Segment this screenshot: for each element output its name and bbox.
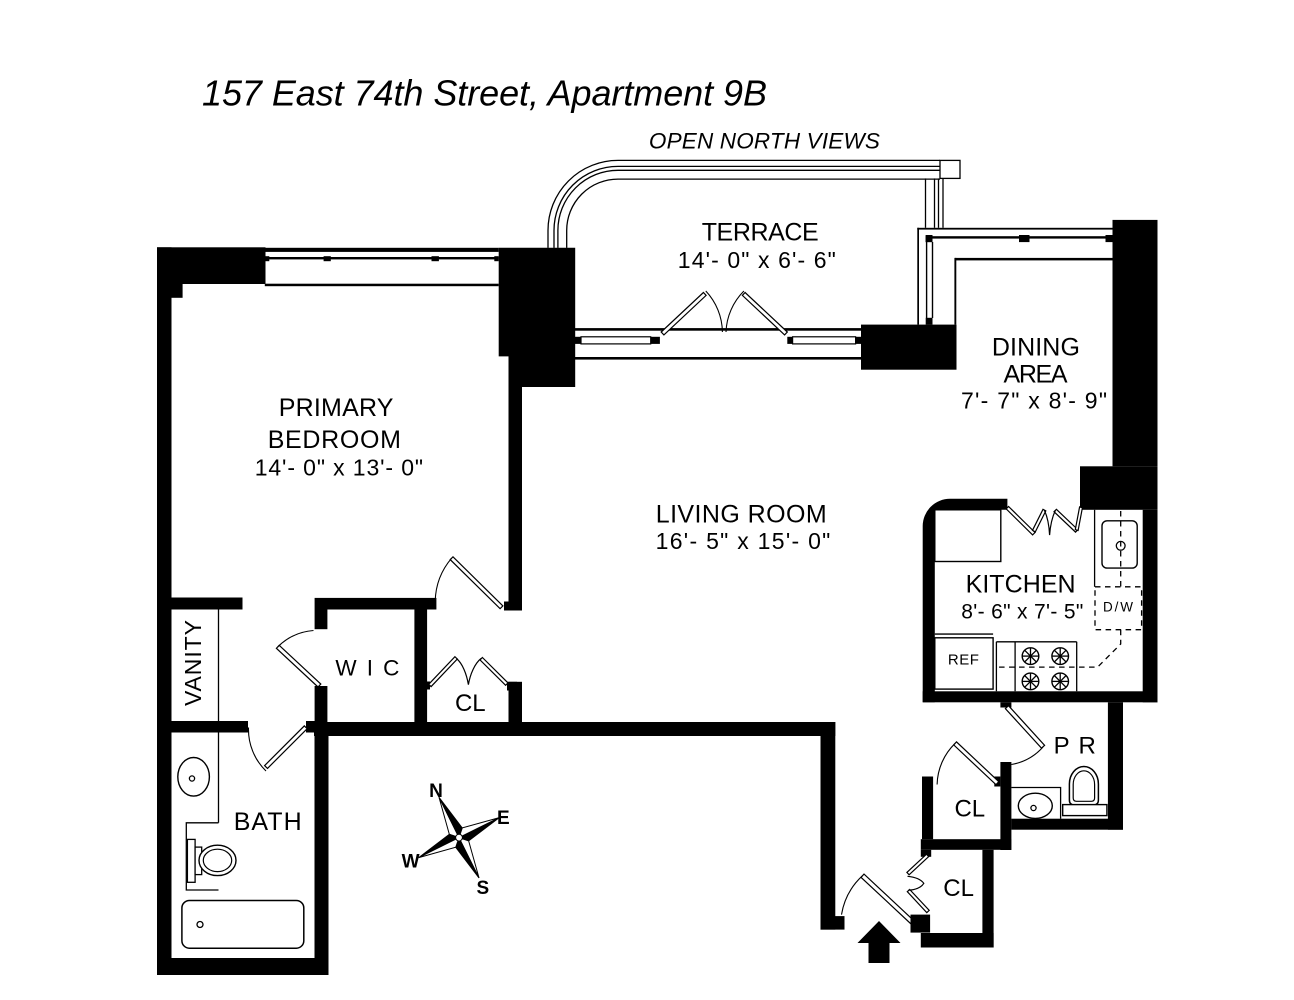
svg-text:7'- 7" x 8'- 9": 7'- 7" x 8'- 9" xyxy=(961,388,1107,414)
svg-text:REF: REF xyxy=(948,652,979,669)
svg-text:E: E xyxy=(497,808,510,829)
svg-text:W I C: W I C xyxy=(335,656,399,681)
svg-text:PRIMARY: PRIMARY xyxy=(279,394,394,422)
svg-text:14'- 0" x 6'- 6": 14'- 0" x 6'- 6" xyxy=(678,247,836,273)
svg-text:CL: CL xyxy=(943,875,974,902)
svg-text:CL: CL xyxy=(954,795,985,822)
svg-text:KITCHEN: KITCHEN xyxy=(966,570,1076,598)
svg-text:OPEN NORTH VIEWS: OPEN NORTH VIEWS xyxy=(649,129,880,154)
svg-text:CL: CL xyxy=(455,690,486,717)
svg-text:P R: P R xyxy=(1054,732,1096,759)
svg-text:157 East 74th Street, Apartmen: 157 East 74th Street, Apartment 9B xyxy=(202,73,767,114)
svg-text:TERRACE: TERRACE xyxy=(702,219,819,247)
svg-text:8'- 6" x 7'- 5": 8'- 6" x 7'- 5" xyxy=(961,601,1083,624)
svg-text:N: N xyxy=(429,781,443,802)
svg-text:AREA: AREA xyxy=(1004,361,1068,389)
svg-text:BATH: BATH xyxy=(234,808,302,836)
svg-text:DINING: DINING xyxy=(992,334,1080,362)
svg-text:LIVING ROOM: LIVING ROOM xyxy=(656,501,827,529)
svg-text:W: W xyxy=(402,852,420,873)
svg-text:S: S xyxy=(477,878,490,899)
svg-text:VANITY: VANITY xyxy=(180,620,206,706)
svg-text:16'- 5" x 15'- 0": 16'- 5" x 15'- 0" xyxy=(656,528,831,554)
svg-text:D/W: D/W xyxy=(1103,600,1133,615)
svg-text:BEDROOM: BEDROOM xyxy=(268,426,401,454)
svg-text:14'- 0" x 13'- 0": 14'- 0" x 13'- 0" xyxy=(255,454,423,480)
